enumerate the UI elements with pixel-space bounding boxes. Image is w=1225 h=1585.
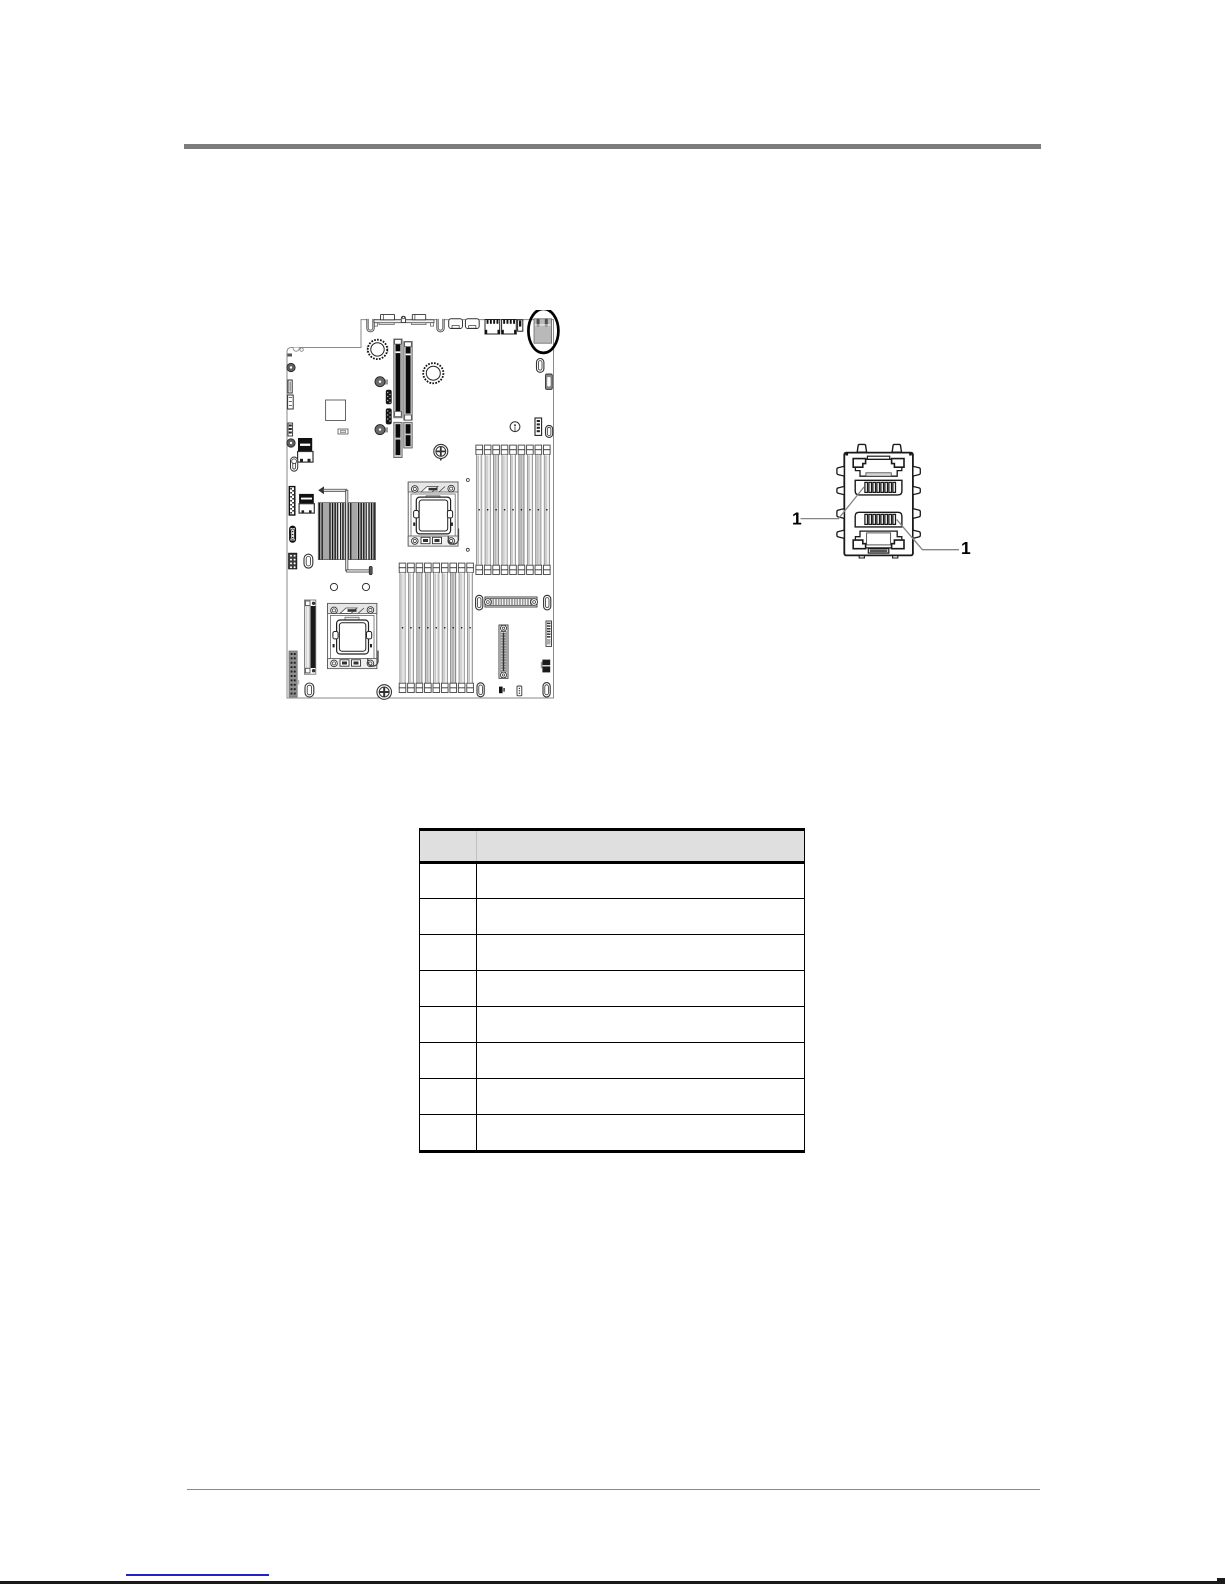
svg-text:1: 1 [961, 538, 971, 558]
svg-text:1: 1 [792, 509, 802, 529]
